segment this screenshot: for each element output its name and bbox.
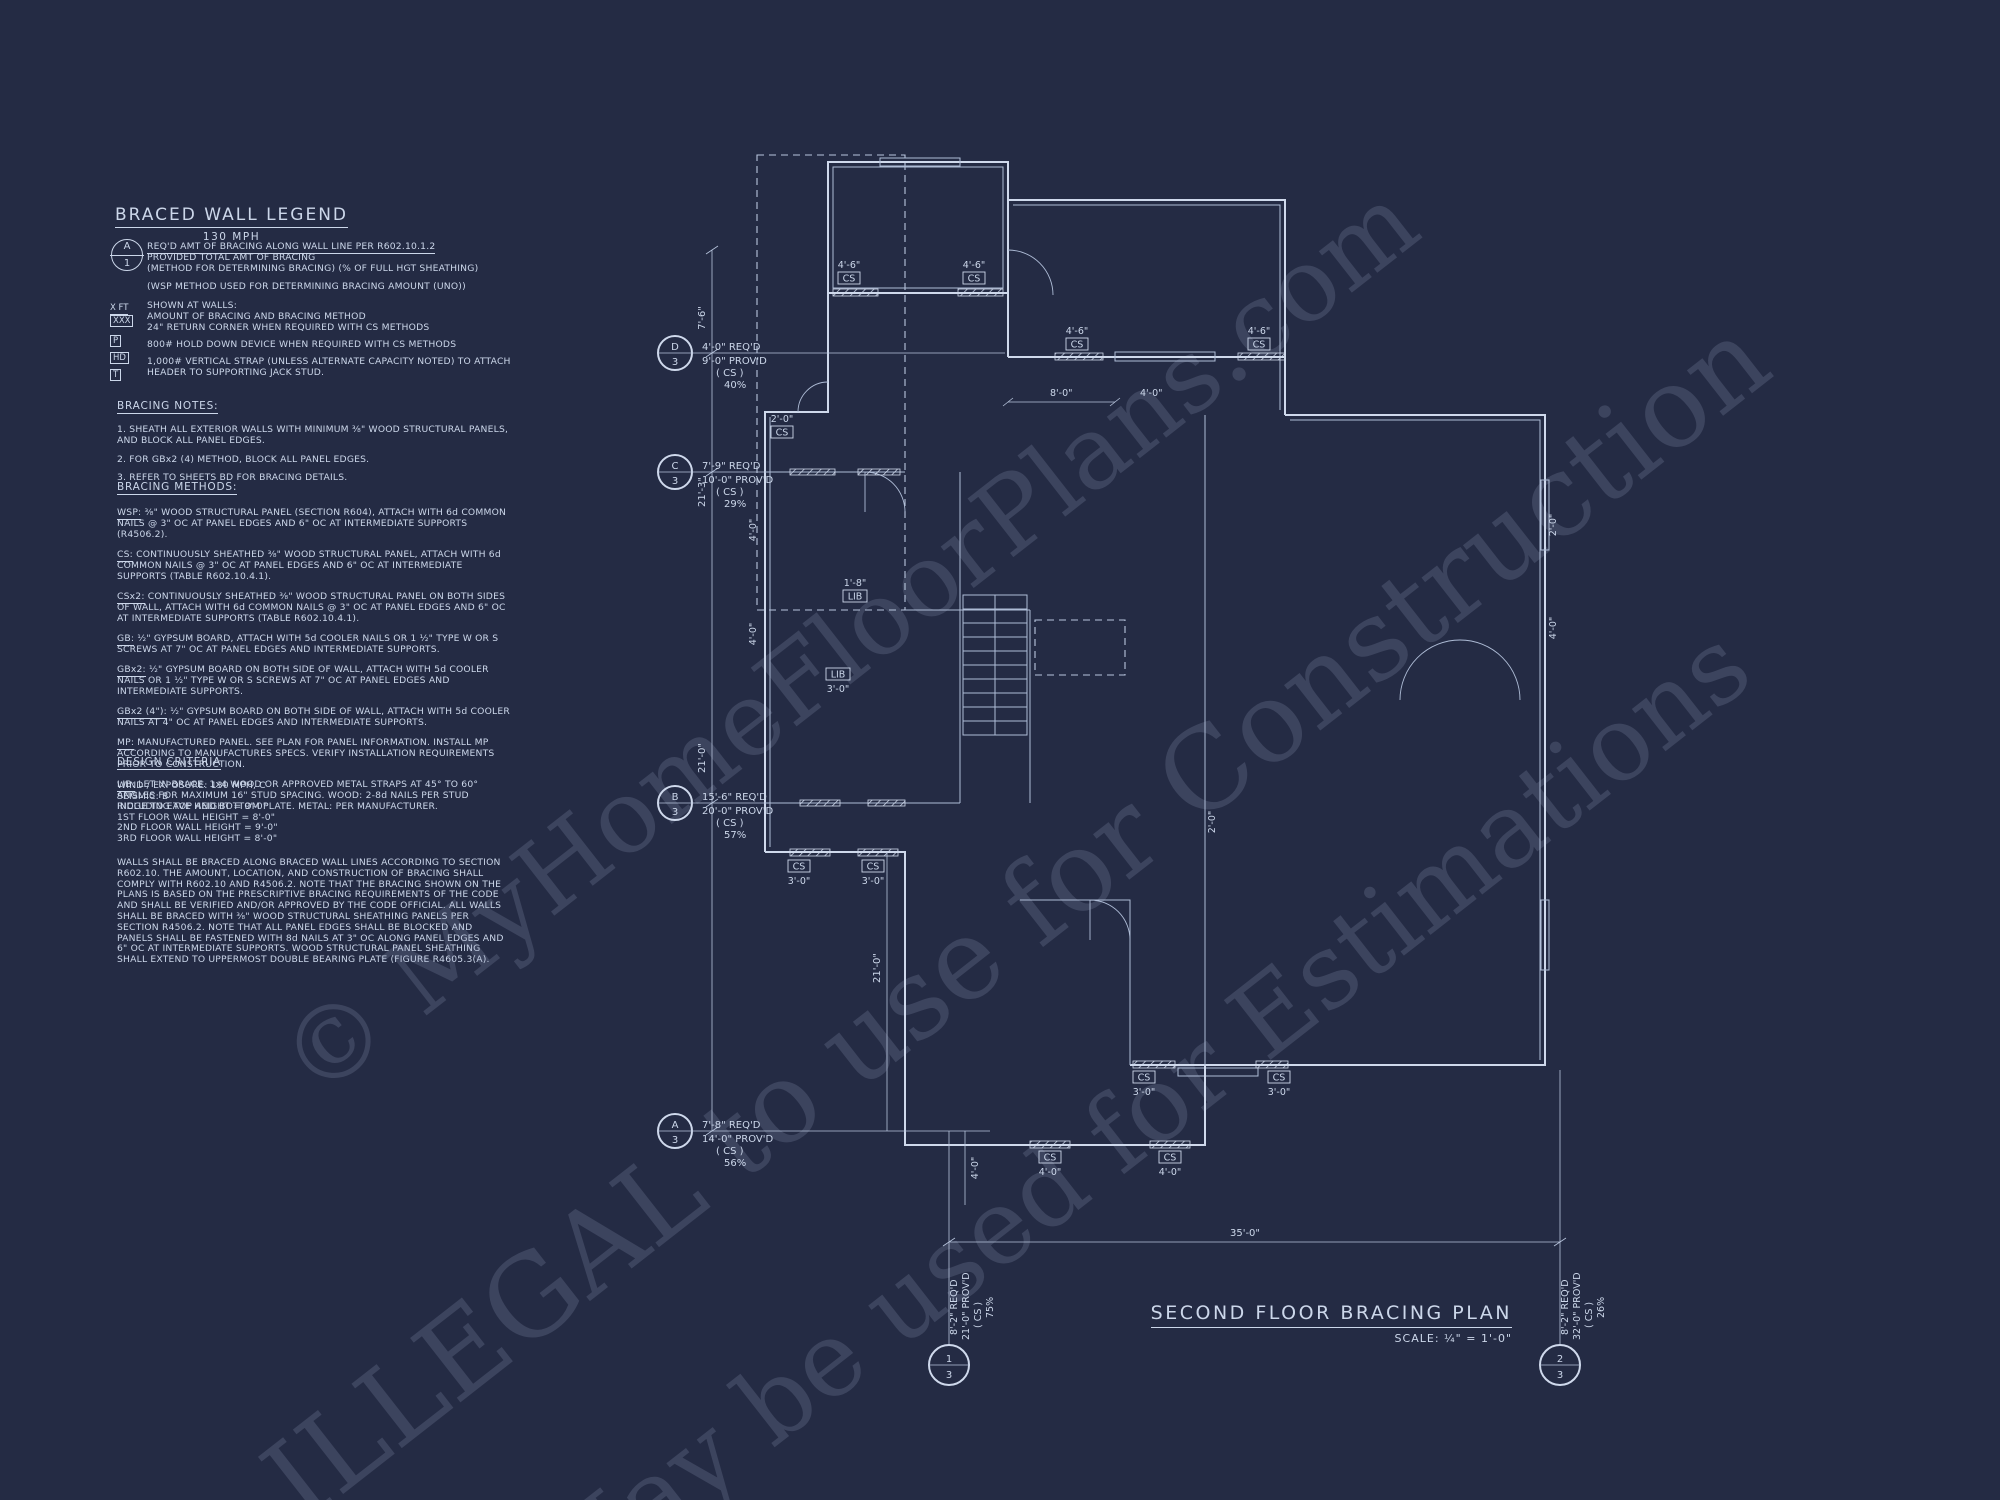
cs-dim-4: 4'-6" [1248, 326, 1271, 337]
callout-c-letter: C [672, 461, 679, 472]
callout-d-req: 4'-0" REQ'D [702, 342, 761, 353]
cs-dim-6: 3'-0" [862, 876, 885, 887]
bwl-1-pct: 75% [985, 1297, 996, 1318]
title-block: SECOND FLOOR BRACING PLAN SCALE: ¼" = 1'… [1151, 1302, 1512, 1345]
callout-b-pct: 57% [724, 830, 746, 841]
callout-b-prov: 20'-0" PROV'D [702, 806, 773, 817]
bwl-2-prov: 32'-0" PROV'D [1572, 1272, 1583, 1340]
cs-tag-5: CS [793, 862, 806, 873]
dim-label-35-0: 35'-0" [1230, 1228, 1260, 1239]
dim-label-21-0-lower: 21'-0" [872, 953, 883, 983]
drawing-title: SECOND FLOOR BRACING PLAN [1151, 1302, 1512, 1328]
cs-tag-7: CS [1138, 1073, 1151, 1084]
callout-a-sheet: 3 [672, 1135, 678, 1146]
cs-tag-10: CS [1164, 1153, 1177, 1164]
callout-a: A 3 7'-8" REQ'D 14'-0" PROV'D ( CS ) 56% [658, 1114, 990, 1169]
cs-dim-11: 2'-0" [771, 414, 794, 425]
cs-tag-1: CS [843, 274, 856, 285]
callout-d-prov: 9'-0" PROV'D [702, 356, 767, 367]
cs-dim-8: 3'-0" [1268, 1087, 1291, 1098]
cs-tag-2: CS [968, 274, 981, 285]
callout-c-method: ( CS ) [716, 487, 744, 498]
callout-c-sheet: 3 [672, 476, 678, 487]
callout-a-req: 7'-8" REQ'D [702, 1120, 761, 1131]
dim-label-21-0: 21'-0" [697, 743, 708, 773]
dim-label-4-0-lower: 4'-0" [970, 1157, 981, 1180]
lib-dim-1: 1'-8" [844, 578, 867, 589]
callout-a-method: ( CS ) [716, 1146, 744, 1157]
callout-b-req: 15'-6" REQ'D [702, 792, 767, 803]
callout-d-pct: 40% [724, 380, 746, 391]
dim-label-4-0-top: 4'-0" [1140, 388, 1163, 399]
callout-d-letter: D [671, 342, 679, 353]
cs-dim-9: 4'-0" [1039, 1167, 1062, 1178]
drawing-scale: SCALE: ¼" = 1'-0" [1151, 1332, 1512, 1345]
dimension-lines [706, 246, 1566, 1345]
bwl-1-method: ( CS ) [973, 1302, 984, 1328]
callout-a-prov: 14'-0" PROV'D [702, 1134, 773, 1145]
bwl-2-method: ( CS ) [1584, 1302, 1595, 1328]
callout-b-method: ( CS ) [716, 818, 744, 829]
side-dim-right-2: 4'-0" [1548, 617, 1559, 640]
dim-label-8-0: 8'-0" [1050, 388, 1073, 399]
bwl-1-num: 1 [946, 1354, 952, 1365]
bwl-1-sheet: 3 [946, 1370, 952, 1381]
lib-tag-2: LIB [831, 670, 846, 681]
cs-dim-7: 3'-0" [1133, 1087, 1156, 1098]
callout-c-prov: 10'-0" PROV'D [702, 475, 773, 486]
bwl-1-req: 8'-2" REQ'D [949, 1279, 960, 1335]
callout-d-sheet: 3 [672, 357, 678, 368]
side-dim-right-1: 2'-0" [1548, 514, 1559, 537]
callout-d-method: ( CS ) [716, 368, 744, 379]
bwl-2-pct: 26% [1596, 1297, 1607, 1318]
bwl-2-num: 2 [1557, 1354, 1563, 1365]
cs-tag-6: CS [867, 862, 880, 873]
callout-c-req: 7'-9" REQ'D [702, 461, 761, 472]
cs-tag-11: CS [776, 428, 789, 439]
cs-dim-5: 3'-0" [788, 876, 811, 887]
cs-dim-3: 4'-6" [1066, 326, 1089, 337]
bwl-marker-2: 2 3 8'-2" REQ'D 32'-0" PROV'D ( CS ) 26% [1540, 1272, 1607, 1385]
callout-b-letter: B [672, 792, 679, 803]
side-dim-left-2: 4'-0" [748, 623, 759, 646]
cs-tag-8: CS [1273, 1073, 1286, 1084]
side-dim-right-3: 2'-0" [1207, 811, 1218, 834]
bwl-2-req: 8'-2" REQ'D [1560, 1279, 1571, 1335]
callout-b-sheet: 3 [672, 807, 678, 818]
blueprint-sheet: BRACED WALL LEGEND 130 MPH A 1 REQ'D AMT… [0, 0, 2000, 1500]
dim-label-7-6: 7'-6" [697, 306, 708, 330]
callout-a-pct: 56% [724, 1158, 746, 1169]
lib-tag-1: LIB [848, 592, 863, 603]
callout-b: B 3 15'-6" REQ'D 20'-0" PROV'D ( CS ) 57… [658, 786, 773, 841]
cs-dim-2: 4'-6" [963, 260, 986, 271]
floor-plan: 7'-6" 21'-3" 21'-0" 21'-0" 4'-0" 35'-0" … [0, 0, 2000, 1500]
bwl-2-sheet: 3 [1557, 1370, 1563, 1381]
cs-tag-4: CS [1253, 340, 1266, 351]
cs-tag-9: CS [1044, 1153, 1057, 1164]
callout-c: C 3 7'-9" REQ'D 10'-0" PROV'D ( CS ) 29% [658, 455, 773, 510]
bwl-marker-1: 1 3 8'-2" REQ'D 21'-0" PROV'D ( CS ) 75% [929, 1272, 996, 1385]
callout-d: D 3 4'-0" REQ'D 9'-0" PROV'D ( CS ) 40% [658, 336, 1005, 391]
callout-c-pct: 29% [724, 499, 746, 510]
plan-linework [757, 155, 1549, 1148]
bwl-1-prov: 21'-0" PROV'D [961, 1272, 972, 1340]
cs-tag-3: CS [1071, 340, 1084, 351]
lib-dim-2: 3'-0" [827, 684, 850, 695]
side-dim-left-1: 4'-0" [748, 519, 759, 542]
cs-dim-1: 4'-6" [838, 260, 861, 271]
cs-dim-10: 4'-0" [1159, 1167, 1182, 1178]
callout-a-letter: A [672, 1120, 679, 1131]
